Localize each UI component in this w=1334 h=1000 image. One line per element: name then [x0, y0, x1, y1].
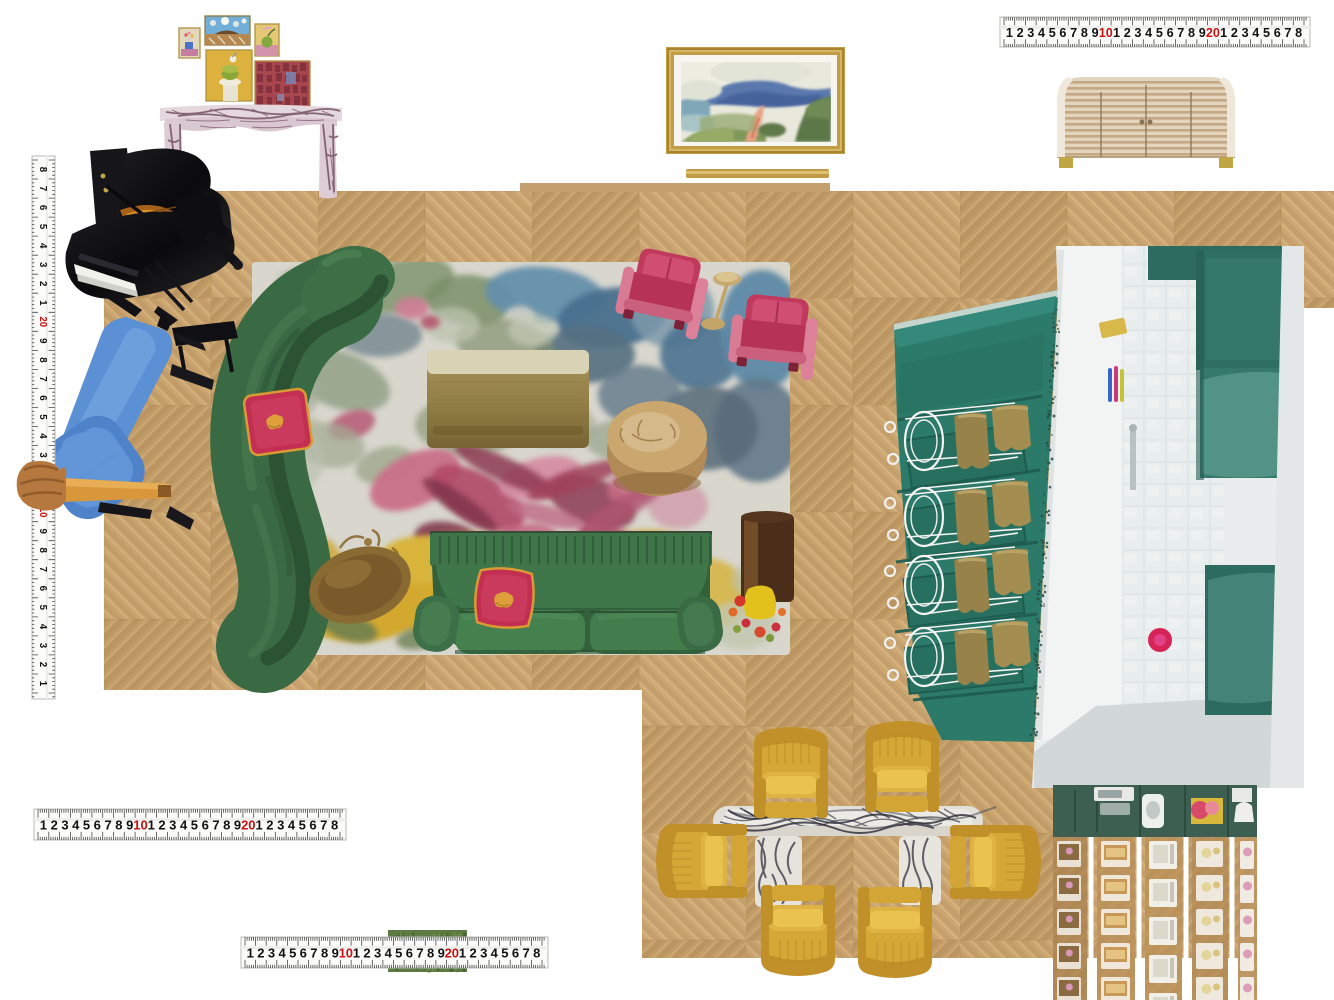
svg-text:1: 1	[148, 818, 155, 833]
svg-text:8: 8	[331, 818, 338, 833]
svg-text:7: 7	[212, 818, 219, 833]
svg-text:2: 2	[363, 946, 370, 961]
svg-text:20: 20	[37, 316, 48, 327]
svg-text:3: 3	[277, 818, 284, 833]
svg-text:3: 3	[37, 452, 48, 458]
svg-text:5: 5	[37, 224, 48, 230]
svg-text:2: 2	[266, 818, 273, 833]
svg-text:8: 8	[533, 946, 540, 961]
svg-text:1: 1	[40, 818, 47, 833]
svg-text:8: 8	[1295, 26, 1302, 40]
svg-text:10: 10	[133, 818, 147, 833]
svg-text:8: 8	[37, 357, 48, 363]
svg-text:8: 8	[321, 946, 328, 961]
svg-text:7: 7	[1070, 26, 1077, 40]
svg-text:1: 1	[37, 300, 48, 306]
svg-text:6: 6	[300, 946, 307, 961]
svg-text:7: 7	[1177, 26, 1184, 40]
svg-text:7: 7	[37, 567, 48, 572]
svg-text:4: 4	[1038, 26, 1045, 40]
svg-text:3: 3	[1027, 26, 1034, 40]
svg-text:6: 6	[37, 586, 48, 592]
svg-text:6: 6	[512, 946, 519, 961]
svg-text:7: 7	[1284, 26, 1291, 40]
svg-text:3: 3	[1134, 26, 1141, 40]
svg-text:2: 2	[37, 281, 48, 286]
svg-text:10: 10	[339, 946, 353, 961]
svg-text:8: 8	[427, 946, 434, 961]
svg-text:3: 3	[169, 818, 176, 833]
svg-text:9: 9	[126, 818, 133, 833]
svg-text:4: 4	[1145, 26, 1152, 40]
svg-text:6: 6	[406, 946, 413, 961]
svg-text:3: 3	[268, 946, 275, 961]
svg-text:8: 8	[1188, 26, 1195, 40]
svg-text:1: 1	[1220, 26, 1227, 40]
svg-text:4: 4	[37, 433, 48, 439]
svg-text:6: 6	[94, 818, 101, 833]
svg-text:5: 5	[299, 818, 306, 833]
svg-text:5: 5	[1156, 26, 1163, 40]
svg-text:5: 5	[191, 818, 198, 833]
svg-text:20: 20	[445, 946, 459, 961]
svg-text:2: 2	[158, 818, 165, 833]
svg-text:7: 7	[37, 186, 48, 191]
svg-text:5: 5	[289, 946, 296, 961]
svg-text:7: 7	[37, 376, 48, 381]
svg-text:6: 6	[309, 818, 316, 833]
svg-text:1: 1	[1006, 26, 1013, 40]
svg-text:1: 1	[37, 681, 48, 687]
svg-text:4: 4	[37, 243, 48, 249]
svg-text:6: 6	[37, 205, 48, 211]
svg-text:9: 9	[37, 529, 48, 535]
svg-text:6: 6	[1167, 26, 1174, 40]
svg-text:4: 4	[1252, 26, 1259, 40]
svg-text:9: 9	[1092, 26, 1099, 40]
svg-text:3: 3	[1242, 26, 1249, 40]
svg-text:6: 6	[1059, 26, 1066, 40]
svg-text:7: 7	[104, 818, 111, 833]
svg-text:4: 4	[278, 946, 286, 961]
svg-text:2: 2	[1017, 26, 1024, 40]
svg-text:2: 2	[51, 818, 58, 833]
svg-text:5: 5	[83, 818, 90, 833]
svg-text:1: 1	[247, 946, 254, 961]
svg-text:4: 4	[288, 818, 296, 833]
svg-text:3: 3	[37, 262, 48, 268]
svg-text:7: 7	[310, 946, 317, 961]
svg-text:3: 3	[480, 946, 487, 961]
svg-text:9: 9	[37, 338, 48, 344]
svg-text:5: 5	[37, 414, 48, 420]
svg-text:8: 8	[1081, 26, 1088, 40]
svg-text:1: 1	[353, 946, 360, 961]
svg-text:8: 8	[37, 548, 48, 554]
svg-text:6: 6	[1274, 26, 1281, 40]
svg-text:5: 5	[395, 946, 402, 961]
svg-text:4: 4	[72, 818, 80, 833]
svg-text:3: 3	[61, 818, 68, 833]
svg-text:3: 3	[374, 946, 381, 961]
svg-text:5: 5	[1263, 26, 1270, 40]
svg-text:7: 7	[320, 818, 327, 833]
svg-text:4: 4	[37, 624, 48, 630]
svg-text:9: 9	[234, 818, 241, 833]
svg-text:2: 2	[37, 662, 48, 667]
svg-text:2: 2	[1124, 26, 1131, 40]
svg-text:7: 7	[416, 946, 423, 961]
svg-text:10: 10	[1099, 26, 1113, 40]
svg-text:6: 6	[202, 818, 209, 833]
svg-text:1: 1	[459, 946, 466, 961]
svg-text:20: 20	[1206, 26, 1220, 40]
svg-text:6: 6	[37, 395, 48, 401]
svg-text:5: 5	[501, 946, 508, 961]
svg-text:20: 20	[241, 818, 255, 833]
svg-text:2: 2	[257, 946, 264, 961]
svg-text:8: 8	[115, 818, 122, 833]
svg-text:7: 7	[522, 946, 529, 961]
svg-text:8: 8	[37, 167, 48, 173]
svg-text:2: 2	[469, 946, 476, 961]
svg-text:1: 1	[255, 818, 262, 833]
svg-text:8: 8	[223, 818, 230, 833]
svg-text:3: 3	[37, 643, 48, 649]
svg-text:9: 9	[1199, 26, 1206, 40]
svg-text:1: 1	[1113, 26, 1120, 40]
svg-text:4: 4	[491, 946, 499, 961]
svg-text:5: 5	[37, 605, 48, 611]
svg-text:5: 5	[1049, 26, 1056, 40]
svg-text:2: 2	[1231, 26, 1238, 40]
svg-text:4: 4	[385, 946, 393, 961]
svg-text:4: 4	[180, 818, 188, 833]
